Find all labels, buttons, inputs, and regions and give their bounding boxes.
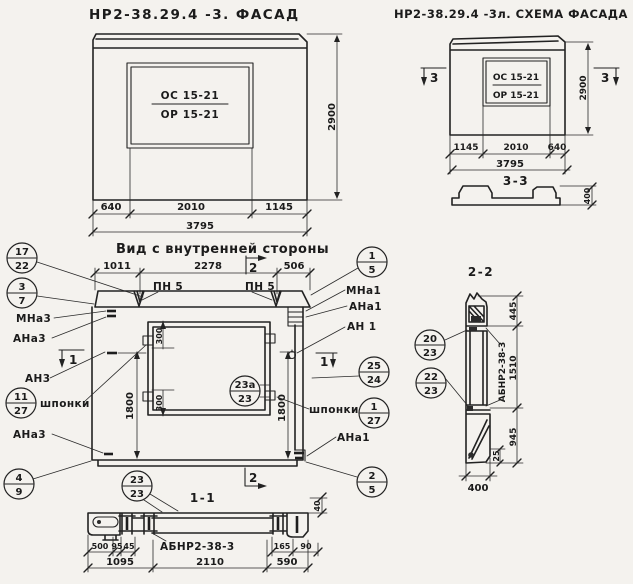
schema-dim-2010: 2010 xyxy=(503,143,528,153)
s11-dim-2110: 2110 xyxy=(196,557,224,568)
callout-bottom: 23 xyxy=(130,489,144,500)
s22-dim-lines xyxy=(459,296,523,481)
dim-300-top: 300 xyxy=(152,321,174,349)
label-ana3: АНа3 xyxy=(13,333,46,345)
facade-dim-3795: 3795 xyxy=(186,221,214,232)
callout-17-22: 17 22 xyxy=(7,243,37,273)
callout-bottom: 23 xyxy=(424,386,438,397)
facade-dim-640: 640 xyxy=(101,202,122,213)
schema-dim-400: 400 xyxy=(583,187,592,204)
label-an3: АН3 xyxy=(25,373,50,385)
s22-dim-400: 400 xyxy=(468,483,489,494)
s11-dim-95: 95 xyxy=(111,542,123,551)
s22-dim-25: 25 xyxy=(492,450,501,462)
callout-bottom: 27 xyxy=(367,416,381,427)
section-3-3-profile xyxy=(452,186,560,205)
section-3-left-label: 3 xyxy=(430,71,440,85)
s11-slot xyxy=(93,517,118,527)
schema-dim-2900: 2900 xyxy=(579,75,589,100)
callout-top: 2 xyxy=(369,471,376,482)
schema-dim-1145: 1145 xyxy=(453,143,478,153)
section-1-right-label: 1 xyxy=(320,355,330,369)
callout-bottom: 7 xyxy=(19,296,26,307)
callout-top: 4 xyxy=(16,473,23,484)
callout-top: 1 xyxy=(369,251,376,262)
callout-1-27: 1 27 xyxy=(359,398,389,428)
s22-dim-445: 445 xyxy=(509,302,519,321)
callout-22-23: 22 23 xyxy=(416,368,446,398)
facade-dim-2900: 2900 xyxy=(327,103,338,131)
schema-window-mark-bottom: ОР 15-21 xyxy=(493,91,539,101)
callout-top: 25 xyxy=(367,361,381,372)
s22-dark-insert xyxy=(469,327,477,331)
schema-dim-640: 640 xyxy=(548,143,567,153)
leader-lines xyxy=(33,262,359,512)
facade-dim-1145: 1145 xyxy=(265,202,293,213)
callout-2-5: 2 5 xyxy=(357,467,387,497)
section-marker-2-bottom: 2 xyxy=(245,468,267,489)
s22-callout-leaders xyxy=(445,328,500,406)
schema-title: НР2-38.29.4 -3л. СХЕМА ФАСАДА xyxy=(394,7,628,21)
dim-300-bottom: 300 xyxy=(152,390,174,416)
arrowhead xyxy=(585,43,591,50)
s11-slot-dot xyxy=(97,520,101,524)
s22-dark-insert xyxy=(471,316,481,322)
callout-23a-23: 23а 23 xyxy=(230,376,260,406)
section-marker-2-top: 2 xyxy=(246,255,267,275)
label-mna1: МНа1 xyxy=(346,285,381,297)
callout-20-23: 20 23 xyxy=(415,330,445,360)
callout-top: 23 xyxy=(130,475,144,486)
section-2-top-label: 2 xyxy=(249,261,259,275)
callout-bottom: 9 xyxy=(16,487,23,498)
s22-dim-945: 945 xyxy=(509,428,519,447)
callout-3-7: 3 7 xyxy=(7,278,37,308)
facade-window-frame xyxy=(127,63,253,148)
arrowhead xyxy=(334,192,340,199)
inner-dim-2278: 2278 xyxy=(194,261,222,272)
label-ana1-2: АНа1 xyxy=(337,432,370,444)
s11-dim-40: 40 xyxy=(313,500,322,512)
schema-view: НР2-38.29.4 -3л. СХЕМА ФАСАДА ОС 15-21 О… xyxy=(394,7,628,209)
inner-view-title: Вид с внутренней стороны xyxy=(116,242,329,257)
anchor-dashes xyxy=(104,311,304,458)
label-ana3-2: АНа3 xyxy=(13,429,46,441)
section-2-2-title: 2-2 xyxy=(468,265,494,279)
label-ana1: АНа1 xyxy=(349,301,382,313)
callout-11-27: 11 27 xyxy=(6,388,36,418)
pn5-label-2: ПН 5 xyxy=(245,281,275,293)
label-an1: АН 1 xyxy=(347,321,376,333)
dim-300-top-text: 300 xyxy=(155,327,164,344)
s11-panel-label: АБНР2-38-3 xyxy=(160,541,235,553)
inner-dim-506: 506 xyxy=(284,261,305,272)
section-2-bottom-label: 2 xyxy=(249,471,259,485)
s22-dark-insert xyxy=(467,406,473,411)
facade-title: НР2-38.29.4 -3. ФАСАД xyxy=(89,7,300,23)
schema-dim-3795: 3795 xyxy=(496,159,524,170)
section-1-1: 1-1 500 95 45 АБНР2-38-3 165 90 1095 211… xyxy=(84,491,327,572)
s11-dim-45: 45 xyxy=(123,542,135,551)
inner-anchor-block-right xyxy=(288,307,303,326)
callout-bottom: 23 xyxy=(423,348,437,359)
label-shponki-left: шпонки xyxy=(40,398,90,410)
s22-panel-label: АБНР2-38-3 xyxy=(498,342,508,402)
callout-bottom: 24 xyxy=(367,375,381,386)
dim-300-bottom-text: 300 xyxy=(155,394,164,411)
label-mna3: МНа3 xyxy=(16,313,51,325)
section-1-left-label: 1 xyxy=(69,353,79,367)
schema-dim-lines xyxy=(450,42,593,174)
callout-4-9: 4 9 xyxy=(4,469,34,499)
facade-view: НР2-38.29.4 -3. ФАСАД ОС 15-21 ОР 15-21 … xyxy=(89,7,342,236)
arrowhead xyxy=(421,77,427,86)
callout-top: 17 xyxy=(15,247,29,258)
facade-dim-2010: 2010 xyxy=(177,202,205,213)
callout-top: 23а xyxy=(235,380,256,391)
s22-anchor-dot xyxy=(468,452,474,458)
callout-bottom: 27 xyxy=(14,406,28,417)
arrowhead xyxy=(613,77,619,86)
schema-window-mark-top: ОС 15-21 xyxy=(493,73,539,83)
callout-bottom: 22 xyxy=(15,261,29,272)
section-2-2: 2-2 445 1510 945 25 400 20 23 22 23 АБНР… xyxy=(415,265,523,494)
callout-top: 20 xyxy=(423,334,437,345)
dim-1800-right-text: 1800 xyxy=(277,394,288,422)
callout-top: 22 xyxy=(424,372,438,383)
callout-bottom: 23 xyxy=(238,394,252,405)
arrowhead xyxy=(585,127,591,134)
inner-dim-1011: 1011 xyxy=(103,261,131,272)
inner-view: Вид с внутренней стороны 1011 2278 506 2 xyxy=(4,242,389,512)
callout-1-5: 1 5 xyxy=(357,247,387,277)
callout-bottom: 5 xyxy=(369,265,376,276)
callout-23-23: 23 23 xyxy=(122,471,152,501)
s11-dim-165: 165 xyxy=(274,542,291,551)
section-3-3-title: 3-3 xyxy=(503,174,529,188)
s11-dim-590: 590 xyxy=(277,557,298,568)
label-shponki-right: шпонки xyxy=(309,404,359,416)
arrowhead xyxy=(334,35,340,42)
callout-top: 3 xyxy=(19,282,26,293)
s22-dim-1510: 1510 xyxy=(509,355,519,380)
pn5-label-1: ПН 5 xyxy=(153,281,183,293)
facade-window-mark-bottom: ОР 15-21 xyxy=(161,109,220,121)
section-1-1-title: 1-1 xyxy=(190,491,216,505)
callout-top: 11 xyxy=(14,392,28,403)
facade-window-mark-top: ОС 15-21 xyxy=(161,90,220,102)
facade-dim-lines xyxy=(93,34,342,236)
section-marker-1-left: 1 xyxy=(59,350,84,368)
s11-dim-1095: 1095 xyxy=(106,557,134,568)
dim-1800-right: 1800 xyxy=(277,351,296,459)
inner-panel-body xyxy=(92,307,303,466)
s11-dim-500: 500 xyxy=(92,542,109,551)
s11-dim-90: 90 xyxy=(300,542,312,551)
section-marker-1-right: 1 xyxy=(316,353,337,369)
drawing-sheet: НР2-38.29.4 -3. ФАСАД ОС 15-21 ОР 15-21 … xyxy=(0,0,633,584)
section-3-right-label: 3 xyxy=(601,71,611,85)
dim-1800-left-text: 1800 xyxy=(125,392,136,420)
callout-25-24: 25 24 xyxy=(359,357,389,387)
s11-profile xyxy=(88,513,308,540)
callout-bottom: 5 xyxy=(369,485,376,496)
callout-top: 1 xyxy=(371,402,378,413)
inner-panel-cap xyxy=(95,291,310,307)
